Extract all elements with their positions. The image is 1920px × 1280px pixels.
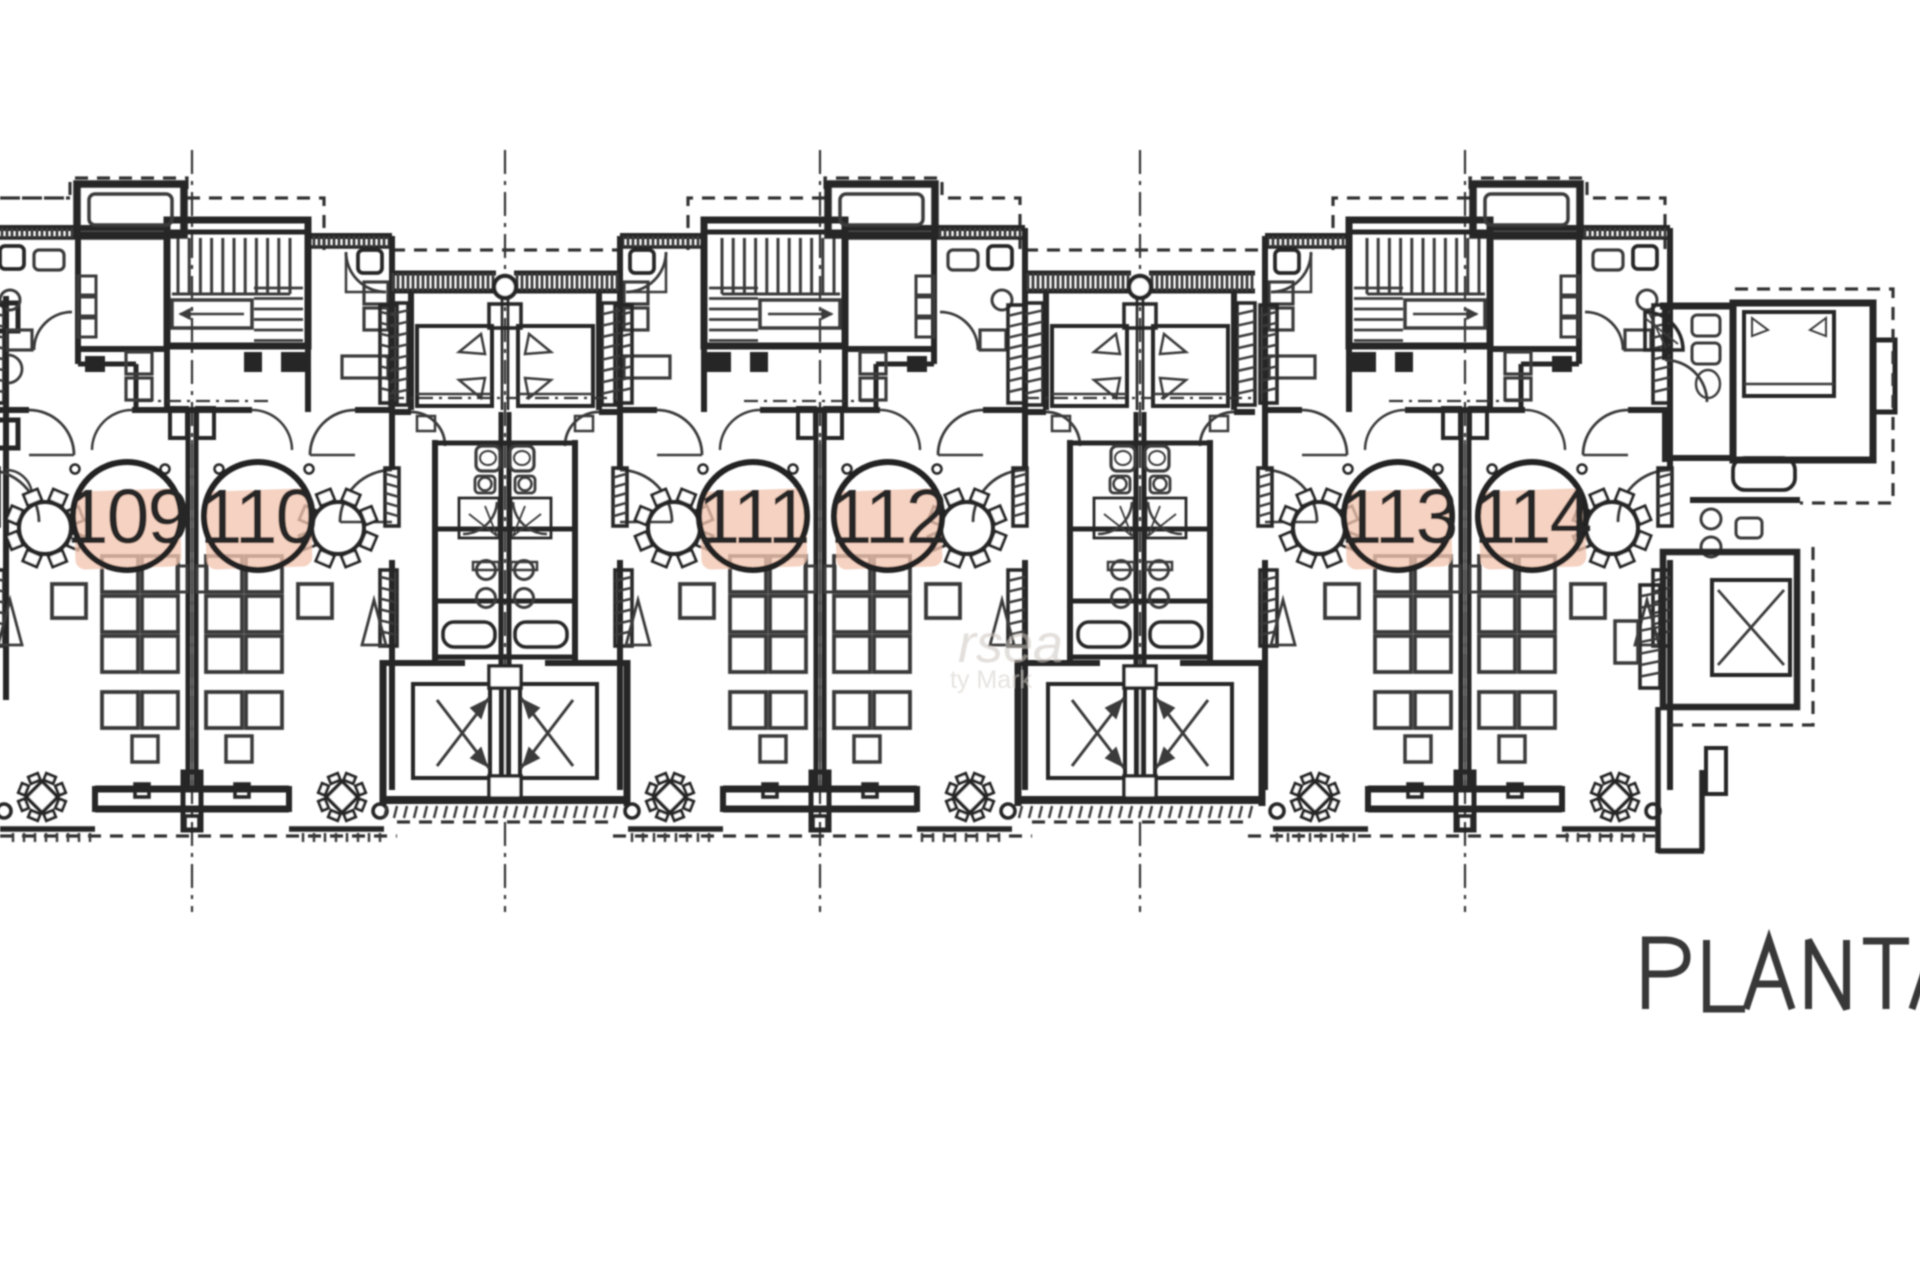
svg-text:114: 114 — [1474, 474, 1591, 560]
svg-text:112: 112 — [830, 474, 947, 560]
svg-text:110: 110 — [200, 474, 317, 560]
svg-text:ty Mark: ty Mark — [950, 666, 1032, 694]
svg-text:rsea: rsea — [958, 614, 1063, 674]
svg-text:109: 109 — [66, 474, 188, 560]
svg-text:113: 113 — [1340, 474, 1457, 560]
svg-text:111: 111 — [697, 474, 808, 560]
